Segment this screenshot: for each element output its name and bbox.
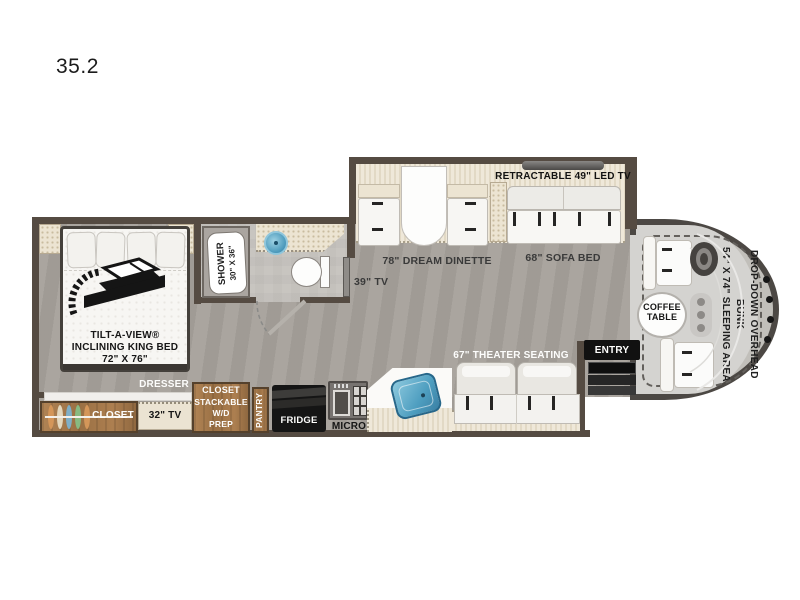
armrest-mark	[528, 396, 531, 410]
toilet-bowl	[291, 257, 322, 287]
shower: SHOWER 30" X 36"	[202, 226, 250, 298]
windshield-dot	[764, 336, 771, 343]
armrest-mark	[490, 396, 493, 410]
belt-mark	[608, 212, 611, 226]
micro-burner	[360, 396, 367, 406]
seat-mark	[662, 248, 672, 251]
entry-step	[588, 386, 636, 395]
fridge-label: FRIDGE	[280, 415, 317, 426]
theater-headrest	[523, 366, 571, 377]
pillow	[95, 232, 125, 269]
seat-mark	[662, 269, 672, 272]
console-dot	[697, 311, 705, 319]
tv39-label: 39" TV	[354, 276, 388, 288]
sofa-seat	[507, 210, 621, 244]
sofa-back-seam	[563, 187, 564, 209]
theater-headrest	[462, 366, 510, 377]
shower-pan: SHOWER 30" X 36"	[206, 231, 247, 295]
console-dot	[697, 298, 705, 306]
belt-mark	[513, 212, 516, 226]
dinette-bench-left-back	[358, 184, 400, 198]
shower-label-line2: 30" X 36"	[226, 241, 239, 284]
theater-seam	[516, 394, 517, 424]
belt-mark	[465, 202, 476, 205]
microwave-icon	[328, 381, 368, 420]
belt-mark	[578, 212, 581, 226]
bedroom-tv-label: 32" TV	[149, 410, 182, 421]
dinette-label: 78" DREAM DINETTE	[382, 255, 491, 267]
dresser-label: DRESSER	[139, 379, 189, 390]
micro-label: MICRO	[332, 421, 366, 432]
nightstand-left	[39, 224, 61, 254]
belt-mark	[553, 212, 556, 226]
passenger-seat-back	[660, 338, 674, 392]
dresser-counter	[44, 392, 192, 401]
bed-label-line1: TILT-A-VIEW®	[90, 330, 159, 341]
console-dot	[697, 324, 705, 332]
bed-label-line3: 72" X 76"	[102, 354, 148, 365]
armrest-mark	[466, 396, 469, 410]
fridge-top-stripe	[272, 397, 326, 409]
pillow	[66, 232, 96, 269]
sofa-label: 68" SOFA BED	[525, 252, 600, 264]
dinette-table	[401, 166, 447, 246]
passenger-seat	[674, 342, 714, 388]
bedroom-closet-label: CLOSET	[92, 410, 134, 421]
bunk-label-line2: 54" X 74" SLEEPING AREA	[718, 238, 732, 390]
belt-mark	[372, 202, 383, 205]
bunk-label-line1: DROP-DOWN OVERHEAD BUNK	[732, 238, 760, 390]
entry-label: ENTRY	[595, 345, 630, 356]
belt-mark	[372, 228, 383, 231]
theater-seat-base	[454, 394, 580, 424]
belt-mark	[538, 212, 541, 226]
sofa-back	[507, 186, 621, 210]
micro-door	[333, 390, 350, 416]
coffee-table-label: COFFEE	[639, 302, 685, 312]
bed-seam	[64, 270, 186, 271]
shower-label: SHOWER 30" X 36"	[215, 241, 239, 285]
micro-burner	[353, 396, 360, 406]
wall-left	[32, 217, 39, 437]
pillow	[155, 232, 185, 269]
micro-burner	[360, 386, 367, 396]
micro-vent	[334, 384, 348, 388]
micro-burner	[360, 406, 367, 416]
model-number: 35.2	[56, 55, 99, 79]
dinette-bench-right-back	[447, 184, 488, 198]
windshield-dot	[767, 316, 774, 323]
dinette-bench-right	[447, 198, 488, 246]
end-cabinet	[490, 182, 507, 242]
belt-mark	[465, 228, 476, 231]
dinette-bench-left	[358, 198, 400, 246]
wall-bath-bottom-right	[300, 297, 350, 303]
theater-label: 67" THEATER SEATING	[453, 350, 568, 361]
tv-39-icon	[343, 257, 350, 297]
retractable-tv-icon	[522, 161, 604, 170]
bunk-label: DROP-DOWN OVERHEAD BUNK 54" X 74" SLEEPI…	[720, 238, 760, 390]
pantry-label: PANTRY	[254, 390, 264, 430]
coffee-table-label: TABLE	[639, 312, 685, 322]
entry-box: ENTRY	[584, 340, 640, 360]
galley-sink-basin	[397, 380, 434, 413]
seat-mark	[682, 351, 692, 354]
armrest-mark	[552, 396, 555, 410]
driver-seat	[656, 240, 692, 286]
wall-slide-left	[349, 157, 356, 224]
wall-bed-bath	[194, 217, 201, 304]
wall-bath-right	[347, 217, 355, 258]
entry-step	[588, 362, 636, 374]
pillow	[126, 232, 156, 269]
windshield-dot	[766, 296, 773, 303]
retractable-tv-label: RETRACTABLE 49" LED TV	[495, 171, 631, 182]
micro-burner	[353, 406, 360, 416]
micro-burner	[353, 386, 360, 396]
floorplan-page: 35.2 COFFEE TABLE DROP-DOWN OVERHEAD BUN…	[0, 0, 800, 600]
wall-slide-right	[625, 157, 637, 229]
driver-seat-back	[643, 236, 656, 290]
windshield-dot	[763, 276, 770, 283]
wd-closet-line4: PREP	[209, 419, 233, 429]
wd-closet-line1: CLOSET	[202, 385, 240, 395]
seat-mark	[682, 373, 692, 376]
entry-step	[588, 375, 636, 385]
wd-closet-line2: STACKABLE	[194, 397, 248, 407]
wd-closet-line3: W/D	[212, 408, 229, 418]
bed-label-line2: INCLINING KING BED	[72, 342, 178, 353]
bath-sink-drain	[274, 241, 278, 245]
coffee-table: COFFEE TABLE	[637, 292, 687, 338]
